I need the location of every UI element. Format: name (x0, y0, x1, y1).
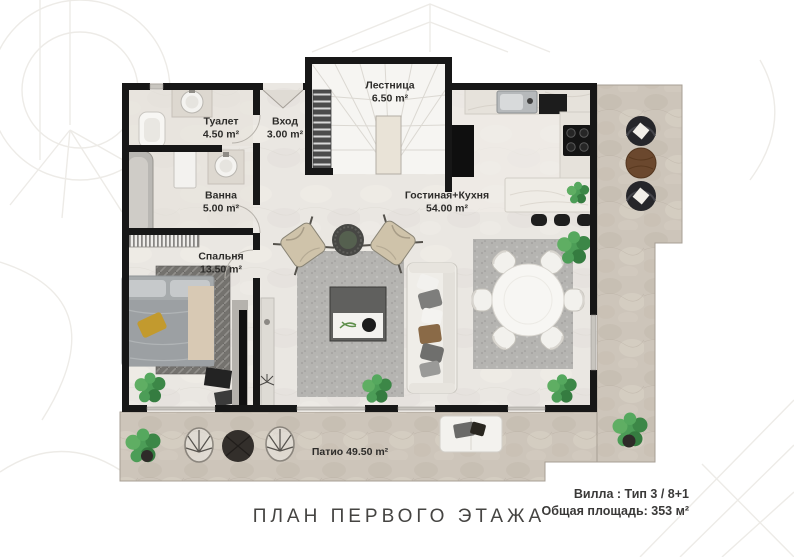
room-label-bath: Ванна 5.00 m² (203, 190, 239, 215)
room-name: Патио 49.50 m² (312, 446, 388, 458)
living-console (260, 298, 274, 410)
bed (122, 276, 214, 366)
stair-ladder-icon (313, 90, 331, 170)
shower-icon (174, 148, 196, 188)
coffee-machine-icon (539, 94, 567, 114)
dining-table (492, 264, 564, 336)
room-label-patio: Патио 49.50 m² (312, 446, 388, 459)
total-area: Общая площадь: 353 м² (542, 503, 689, 520)
room-area: 5.00 m² (203, 202, 239, 215)
floor-plan-page: Туалет 4.50 m² Вход 3.00 m² Лестница 6.5… (0, 0, 794, 557)
villa-type: Вилла : Тип 3 / 8+1 (542, 486, 689, 503)
room-name: Туалет (203, 116, 239, 129)
villa-info: Вилла : Тип 3 / 8+1 Общая площадь: 353 м… (542, 486, 689, 520)
room-name: Гостиная+Кухня (405, 190, 489, 203)
room-name: Вход (267, 116, 303, 129)
terrace-chair-icon (626, 116, 656, 146)
patio-table-icon (222, 430, 254, 462)
tv-icon (239, 310, 247, 405)
lounge-sofa (440, 416, 502, 452)
fridge-icon (450, 125, 474, 177)
room-label-stairs: Лестница 6.50 m² (365, 80, 414, 105)
bar-stools (531, 214, 593, 226)
side-planter-icon (332, 224, 364, 256)
room-label-living-kitchen: Гостиная+Кухня 54.00 m² (405, 190, 489, 215)
plan-title: ПЛАН ПЕРВОГО ЭТАЖА (253, 506, 545, 528)
room-name: Лестница (365, 80, 414, 93)
room-area: 6.50 m² (365, 92, 414, 105)
room-area: 4.50 m² (203, 128, 239, 141)
ottoman-icon (204, 367, 232, 388)
coffee-table (330, 287, 386, 341)
room-label-toilet: Туалет 4.50 m² (203, 116, 239, 141)
wire-chair-icon (266, 427, 294, 461)
terrace-chair-icon (626, 181, 656, 211)
room-label-entrance: Вход 3.00 m² (267, 116, 303, 141)
sofa (407, 263, 457, 393)
room-name: Спальня (198, 251, 243, 264)
room-label-bedroom: Спальня 13.50 m² (198, 251, 243, 276)
room-name: Ванна (203, 190, 239, 203)
stair-landing (376, 116, 401, 174)
room-area: 3.00 m² (267, 128, 303, 141)
terrace-furniture (626, 116, 656, 211)
terrace-table-icon (626, 148, 656, 178)
room-area: 13.50 m² (198, 263, 243, 276)
wire-chair-icon (185, 428, 213, 462)
room-area: 54.00 m² (405, 202, 489, 215)
